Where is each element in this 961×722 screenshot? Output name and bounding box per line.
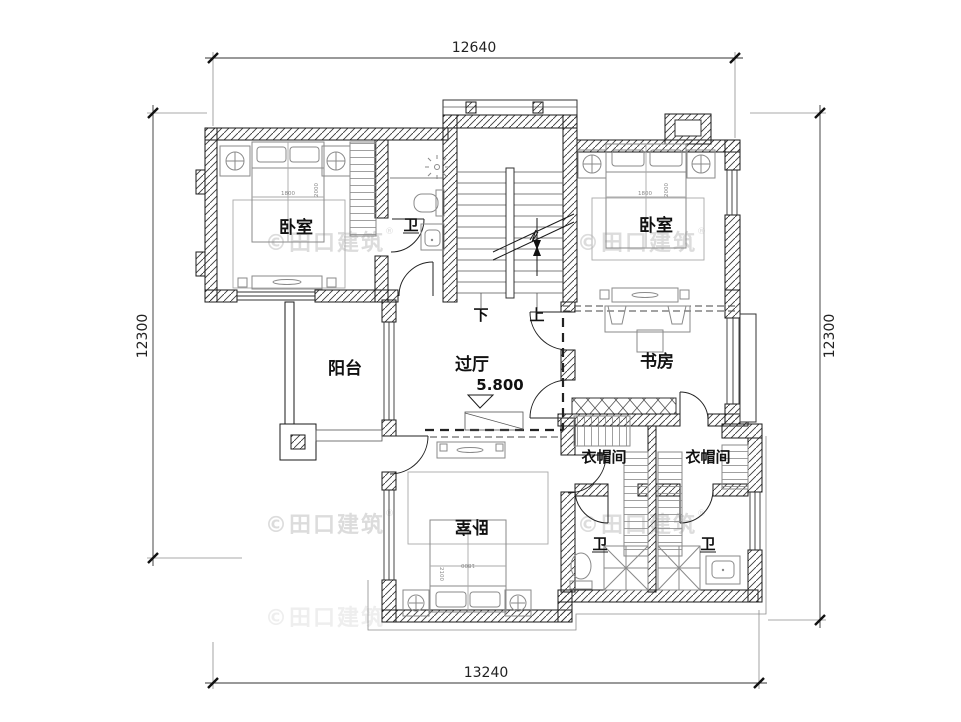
nightstand [322,146,350,176]
room-label-bath-s-right: 卫 [700,535,716,553]
room-label-cloakroom-left: 衣帽间 [581,448,626,466]
stair-break-line [493,214,574,260]
dim-left-value: 12300 [135,314,151,359]
svg-text:©田口建筑: ©田口建筑 [265,605,385,631]
toilet [414,190,444,216]
balcony-structure [280,302,382,460]
svg-text:®: ® [385,227,394,237]
elevation-marker: 5.800 [465,376,524,430]
door-cloak-right [680,392,708,420]
floor-plan-canvas: ©田口建筑® ©田口建筑® ©田口建筑® ©田口建筑® ©田口建筑 12640 … [0,0,961,722]
dimension-left: 12300 [135,105,242,566]
shower [604,546,648,590]
svg-text:®: ® [697,227,706,237]
svg-text:卫: 卫 [403,216,418,234]
svg-text:卫: 卫 [700,535,715,553]
window-se-wall [750,492,760,550]
room-label-study: 书房 [640,351,674,372]
watermark: ©田口建筑® [265,509,394,538]
room-label-bedroom-ne: 卧室 [639,215,673,236]
room-label-bath-nw: 卫 [403,216,419,234]
hall-items: 5.800 [437,376,524,458]
dim-top-value: 12640 [452,40,497,56]
bed-width-dim: 1800 [461,562,475,568]
tv-bench [238,276,336,289]
staircase: 下 上 [457,168,574,324]
svg-text:卫: 卫 [592,535,607,553]
door-nw-hall [399,262,433,296]
room-label-bath-s-left: 卫 [592,535,608,553]
elevation-value: 5.800 [476,376,523,394]
sink [706,556,740,584]
furniture-nw-bedroom: 1800 2000 [220,142,376,289]
window-s-bedroom [384,490,394,580]
window-balcony-wall [384,322,394,420]
wardrobe [658,452,682,556]
stair-down-label: 下 [473,306,488,324]
shower [658,546,700,590]
bed-width-dim: 1800 [281,191,295,197]
wardrobe [624,452,648,556]
furniture-s-bedroom: 1800 2100 [403,472,548,616]
nightstand [220,146,250,176]
room-label-bedroom-s: 卧室 [455,516,489,537]
watermark: ©田口建筑 [265,605,385,631]
bed-depth-dim: 2100 [438,567,444,581]
window-ne-bedroom [727,170,737,215]
room-label-bedroom-nw: 卧室 [279,217,313,238]
wardrobe [574,416,630,446]
stair-up-label: 上 [529,306,544,324]
stair-stringer [506,168,514,298]
svg-text:©田口建筑: ©田口建筑 [265,512,385,538]
ceiling-light-icon [425,155,449,179]
dimension-right: 12300 [750,105,838,628]
room-label-hall: 过厅 [455,355,489,375]
dim-right-value: 12300 [822,314,838,359]
bed-depth-dim: 2000 [314,183,320,197]
floor-plan-page: ©田口建筑® ©田口建筑® ©田口建筑® ©田口建筑® ©田口建筑 12640 … [0,0,961,722]
svg-text:©田口建筑: ©田口建筑 [577,230,697,256]
room-label-balcony: 阳台 [328,358,362,379]
duct-box [572,398,676,414]
wardrobe [350,142,376,236]
door-balcony [390,436,428,474]
nightstand [578,150,606,178]
bed-width-dim: 1800 [638,191,652,197]
bed-depth-dim: 2000 [664,183,670,197]
dim-bottom-value: 13240 [464,665,509,681]
nightstand [687,150,715,178]
sink [421,224,444,250]
bench [600,288,689,302]
window-nw-bedroom [237,292,315,300]
svg-text:®: ® [385,509,394,519]
hall-cabinet [437,442,505,458]
desk [605,306,690,352]
room-label-cloakroom-right: 衣帽间 [685,448,730,466]
